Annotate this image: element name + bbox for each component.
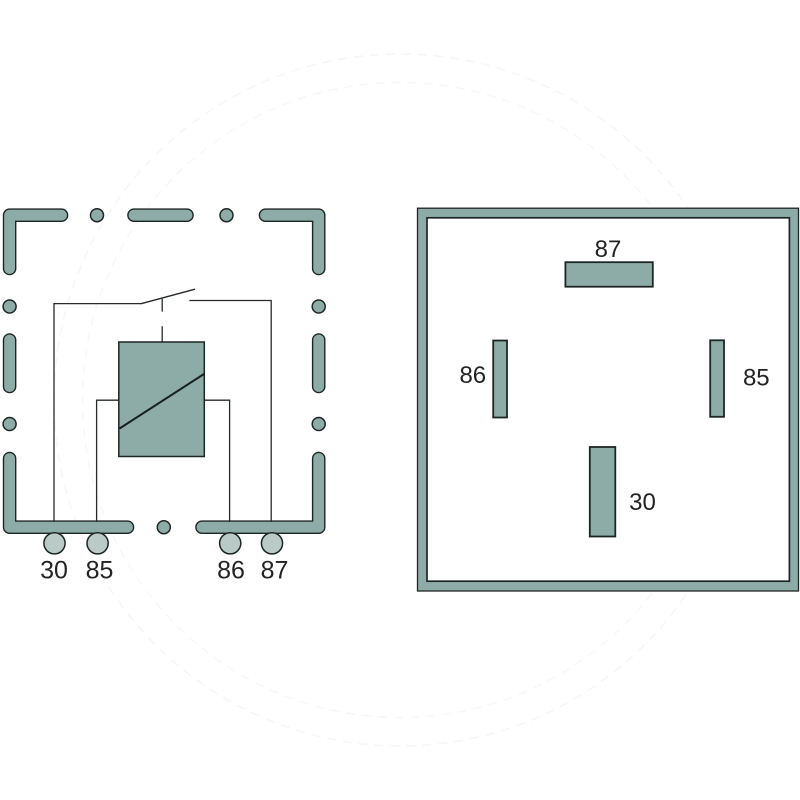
svg-text:86: 86 (217, 557, 245, 585)
svg-text:87: 87 (261, 557, 289, 585)
svg-text:85: 85 (743, 365, 770, 392)
svg-text:30: 30 (40, 557, 68, 585)
svg-text:30: 30 (629, 489, 656, 516)
svg-text:87: 87 (595, 236, 622, 263)
svg-text:86: 86 (459, 362, 486, 389)
svg-text:85: 85 (86, 557, 114, 585)
